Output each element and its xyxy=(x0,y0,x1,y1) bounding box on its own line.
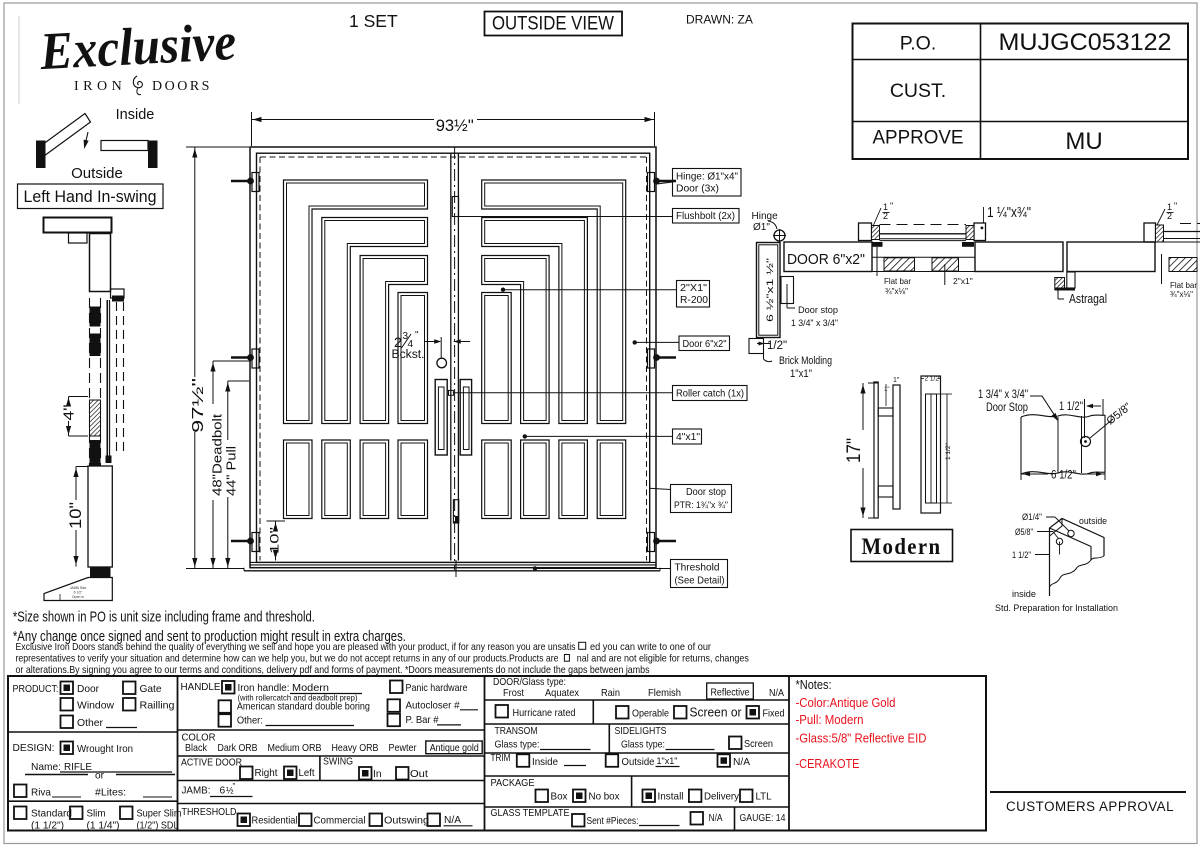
svg-text:Commercial: Commercial xyxy=(314,816,366,827)
svg-text:Panic hardware: Panic hardware xyxy=(406,683,468,694)
svg-text:Flemish: Flemish xyxy=(648,688,681,699)
svg-text:Railling: Railling xyxy=(140,701,175,712)
svg-text:1 1/2": 1 1/2" xyxy=(1012,550,1031,561)
svg-text:(1/2") SDL: (1/2") SDL xyxy=(137,821,179,832)
svg-text:inside: inside xyxy=(1012,589,1036,600)
svg-text:Fixed: Fixed xyxy=(763,709,785,720)
svg-text:Hurricane rated: Hurricane rated xyxy=(513,708,576,719)
svg-text:10": 10" xyxy=(66,502,85,529)
svg-text:Antique gold: Antique gold xyxy=(430,743,479,754)
svg-text:Door (3x): Door (3x) xyxy=(676,184,719,195)
svg-text:Left Hand In-swing: Left Hand In-swing xyxy=(24,188,157,206)
svg-text:*Notes:: *Notes: xyxy=(796,677,832,692)
svg-text:2 1/2": 2 1/2" xyxy=(925,376,942,383)
svg-text:In: In xyxy=(373,769,382,780)
svg-text:Rain: Rain xyxy=(601,688,620,699)
svg-text:¾"x⅛": ¾"x⅛" xyxy=(1170,290,1193,299)
svg-text:-Glass:5/8" Reflective EID: -Glass:5/8" Reflective EID xyxy=(796,731,927,746)
svg-text:Heavy ORB: Heavy ORB xyxy=(332,743,379,754)
svg-text:Operable: Operable xyxy=(632,709,669,720)
svg-text:6 1/2": 6 1/2" xyxy=(1051,470,1076,482)
svg-text:MU: MU xyxy=(1065,128,1102,155)
svg-text:(1 1/2"): (1 1/2") xyxy=(31,821,64,832)
svg-text:4"x1": 4"x1" xyxy=(676,432,700,443)
svg-text:2"X1": 2"X1" xyxy=(680,283,707,294)
svg-text:Glass type:: Glass type: xyxy=(621,740,665,751)
svg-text:Outside: Outside xyxy=(622,757,655,768)
svg-text:Delivery: Delivery xyxy=(704,792,740,803)
svg-text:N/A: N/A xyxy=(769,688,784,699)
svg-text:44" Pull: 44" Pull xyxy=(225,446,239,496)
svg-text:": " xyxy=(1174,201,1177,211)
svg-text:Inside: Inside xyxy=(532,757,558,768)
svg-text:Name:: Name: xyxy=(31,762,61,773)
svg-text:APPROVE: APPROVE xyxy=(873,127,964,149)
svg-text:R-200: R-200 xyxy=(680,295,708,306)
svg-text:DOOR/Glass type:: DOOR/Glass type: xyxy=(493,677,566,688)
svg-text:American standard double borin: American standard double boring xyxy=(237,702,370,713)
svg-text:Aquatex: Aquatex xyxy=(545,688,579,699)
svg-text:TRANSOM: TRANSOM xyxy=(495,726,538,737)
svg-text:1"x1": 1"x1" xyxy=(790,368,812,380)
svg-text:Hinge: Hinge xyxy=(752,211,779,222)
svg-text:Astragal: Astragal xyxy=(1069,292,1107,306)
svg-text:ed you can write to one of our: ed you can write to one of our xyxy=(590,641,711,653)
svg-text:COLOR: COLOR xyxy=(182,732,216,744)
svg-text:Bckst.: Bckst. xyxy=(392,349,425,361)
svg-text:DOOR 6"x2": DOOR 6"x2" xyxy=(787,251,865,268)
svg-text:Other:: Other: xyxy=(237,716,263,727)
svg-text:PRODUCT:: PRODUCT: xyxy=(13,684,59,695)
svg-text:P.O.: P.O. xyxy=(900,33,937,55)
svg-text:OUTSIDE VIEW: OUTSIDE VIEW xyxy=(492,14,614,35)
svg-text:-Pull: Modern: -Pull: Modern xyxy=(796,712,864,727)
svg-text:(See Detail): (See Detail) xyxy=(675,576,725,587)
svg-text:-Color:Antique Gold: -Color:Antique Gold xyxy=(796,695,896,710)
svg-text:Hinge: Ø1"x4": Hinge: Ø1"x4" xyxy=(676,172,738,183)
svg-text:JAMB Size: JAMB Size xyxy=(70,586,87,590)
svg-text:CUSTOMERS APPROVAL: CUSTOMERS APPROVAL xyxy=(1006,799,1174,814)
svg-text:-CERAKOTE: -CERAKOTE xyxy=(796,756,860,771)
svg-text:RIFLE: RIFLE xyxy=(64,762,92,773)
svg-text:Slim: Slim xyxy=(87,809,106,820)
svg-text:": " xyxy=(415,330,419,341)
svg-text:1 3/4" x 3/4": 1 3/4" x 3/4" xyxy=(978,389,1028,401)
svg-text:nal and are not eligible for r: nal and are not eligible for returns, ch… xyxy=(577,653,749,665)
svg-text:THRESHOLD: THRESHOLD xyxy=(182,807,237,818)
svg-text:Door 6"x2": Door 6"x2" xyxy=(683,339,727,350)
svg-text:1 1/2": 1 1/2" xyxy=(1059,401,1083,413)
svg-text:Modern: Modern xyxy=(862,534,942,559)
svg-text:2"x1": 2"x1" xyxy=(953,276,973,286)
svg-text:Residential: Residential xyxy=(252,816,298,827)
svg-text:Outswing: Outswing xyxy=(384,816,429,827)
svg-text:Autocloser #: Autocloser # xyxy=(406,701,460,712)
svg-text:representatives to verify your: representatives to verify your situation… xyxy=(16,653,559,665)
svg-text:1": 1" xyxy=(893,377,900,384)
svg-text:(1 1/4"): (1 1/4") xyxy=(87,821,120,832)
svg-text:Door Stop: Door Stop xyxy=(986,402,1028,414)
svg-text:GAUGE: 14: GAUGE: 14 xyxy=(740,813,786,824)
svg-text:Outside: Outside xyxy=(71,165,123,182)
svg-text:LTL: LTL xyxy=(756,792,772,803)
svg-text:ACTIVE DOOR: ACTIVE DOOR xyxy=(181,758,242,769)
svg-text:¾"x⅛": ¾"x⅛" xyxy=(885,287,908,296)
svg-text:MUJGC053122: MUJGC053122 xyxy=(999,29,1172,56)
svg-text:Box: Box xyxy=(551,792,568,803)
svg-text:*Size shown in PO is unit size: *Size shown in PO is unit size including… xyxy=(13,610,315,626)
svg-text:TRIM: TRIM xyxy=(491,753,511,764)
svg-text:Pewter: Pewter xyxy=(389,743,418,754)
svg-text:#Lites:: #Lites: xyxy=(95,788,126,799)
svg-text:Flat bar: Flat bar xyxy=(1170,280,1197,290)
svg-text:Std. Preparation for Installat: Std. Preparation for Installation xyxy=(995,603,1118,614)
svg-text:93½": 93½" xyxy=(436,117,474,135)
svg-text:1 ¼"x¾": 1 ¼"x¾" xyxy=(987,204,1031,221)
svg-text:Right: Right xyxy=(255,768,278,779)
svg-text:HANDLE: HANDLE xyxy=(181,681,221,693)
svg-text:Screen or: Screen or xyxy=(690,706,742,720)
svg-text:Screen: Screen xyxy=(744,739,773,750)
svg-text:Exclusive: Exclusive xyxy=(38,13,238,81)
svg-text:DOORS: DOORS xyxy=(152,79,212,94)
svg-text:1 3/4" x 3/4": 1 3/4" x 3/4" xyxy=(791,318,838,329)
svg-text:6 1/2": 6 1/2" xyxy=(74,591,84,595)
svg-text:Standard: Standard xyxy=(31,809,72,820)
svg-text:or: or xyxy=(95,771,105,782)
svg-text:PACKAGE: PACKAGE xyxy=(491,778,535,789)
svg-text:Open in: Open in xyxy=(72,595,84,599)
svg-text:4": 4" xyxy=(61,405,78,421)
svg-text:N/A: N/A xyxy=(709,813,723,824)
svg-text:Install: Install xyxy=(658,792,684,803)
svg-text:97½": 97½" xyxy=(190,378,207,433)
svg-text:Super Slim: Super Slim xyxy=(137,809,182,820)
svg-text:Roller catch (1x): Roller catch (1x) xyxy=(676,389,744,400)
svg-text:2: 2 xyxy=(394,334,402,350)
svg-text:Brick Molding: Brick Molding xyxy=(779,355,832,367)
svg-text:1": 1" xyxy=(884,387,889,393)
svg-text:": " xyxy=(233,782,236,791)
svg-text:Door stop: Door stop xyxy=(686,487,726,498)
svg-text:Glass type:: Glass type: xyxy=(495,740,540,751)
svg-text:JAMB:: JAMB: xyxy=(182,786,211,797)
svg-text:6: 6 xyxy=(220,786,226,797)
svg-text:or alterations.By signing you: or alterations.By signing you agree to o… xyxy=(16,664,650,676)
svg-text:Ø1": Ø1" xyxy=(753,222,770,233)
svg-text:Medium ORB: Medium ORB xyxy=(268,743,322,754)
svg-text:IRON: IRON xyxy=(74,79,126,94)
svg-text:SIDELIGHTS: SIDELIGHTS xyxy=(615,726,667,737)
svg-text:17": 17" xyxy=(844,438,865,463)
svg-text:Gate: Gate xyxy=(140,684,162,695)
svg-text:Flat bar: Flat bar xyxy=(884,276,911,286)
svg-text:Riva: Riva xyxy=(31,788,51,799)
svg-text:1/2": 1/2" xyxy=(767,340,787,352)
svg-text:1 1/2": 1 1/2" xyxy=(945,443,952,460)
svg-text:Reflective: Reflective xyxy=(711,688,750,699)
svg-text:PTR: 1¾"x ¾": PTR: 1¾"x ¾" xyxy=(674,500,728,511)
svg-text:Inside: Inside xyxy=(116,107,155,123)
svg-text:outside: outside xyxy=(1079,516,1107,527)
svg-text:Ø1/4": Ø1/4" xyxy=(1022,512,1042,523)
svg-text:GLASS TEMPLATE: GLASS TEMPLATE xyxy=(491,808,570,819)
svg-text:SWING: SWING xyxy=(323,757,353,768)
svg-text:N/A: N/A xyxy=(733,757,750,768)
svg-text:Window: Window xyxy=(77,701,115,712)
svg-text:P. Bar #: P. Bar # xyxy=(406,715,439,726)
svg-text:48"Deadbolt: 48"Deadbolt xyxy=(211,413,225,496)
svg-text:6 ½"x1 ½": 6 ½"x1 ½" xyxy=(765,258,776,322)
svg-text:Sent #Pieces:: Sent #Pieces: xyxy=(587,816,639,827)
svg-text:Black: Black xyxy=(185,743,208,754)
svg-text:Other: Other xyxy=(77,718,104,729)
svg-text:1 SET: 1 SET xyxy=(349,11,398,31)
svg-text:": " xyxy=(890,201,893,211)
svg-text:Wrought Iron: Wrought Iron xyxy=(77,744,133,755)
svg-text:DRAWN: ZA: DRAWN: ZA xyxy=(686,13,753,27)
svg-text:Left: Left xyxy=(299,768,315,779)
svg-text:1"x1": 1"x1" xyxy=(657,756,678,767)
svg-text:Dark ORB: Dark ORB xyxy=(218,743,258,754)
svg-text:Flushbolt (2x): Flushbolt (2x) xyxy=(676,211,735,222)
svg-text:N/A: N/A xyxy=(444,815,461,826)
svg-text:No box: No box xyxy=(589,792,620,803)
svg-text:DESIGN:: DESIGN: xyxy=(13,743,55,754)
svg-text:10": 10" xyxy=(268,527,282,554)
svg-text:Out: Out xyxy=(410,769,428,780)
svg-text:Exclusive Iron Doors stands be: Exclusive Iron Doors stands behind the q… xyxy=(16,641,576,653)
svg-text:Ø5/8": Ø5/8" xyxy=(1015,527,1033,538)
svg-text:Frost: Frost xyxy=(503,688,524,699)
svg-text:CUST.: CUST. xyxy=(890,80,946,102)
svg-text:Threshold: Threshold xyxy=(675,563,720,574)
svg-text:Door: Door xyxy=(77,684,100,695)
svg-text:Door stop: Door stop xyxy=(798,305,838,316)
